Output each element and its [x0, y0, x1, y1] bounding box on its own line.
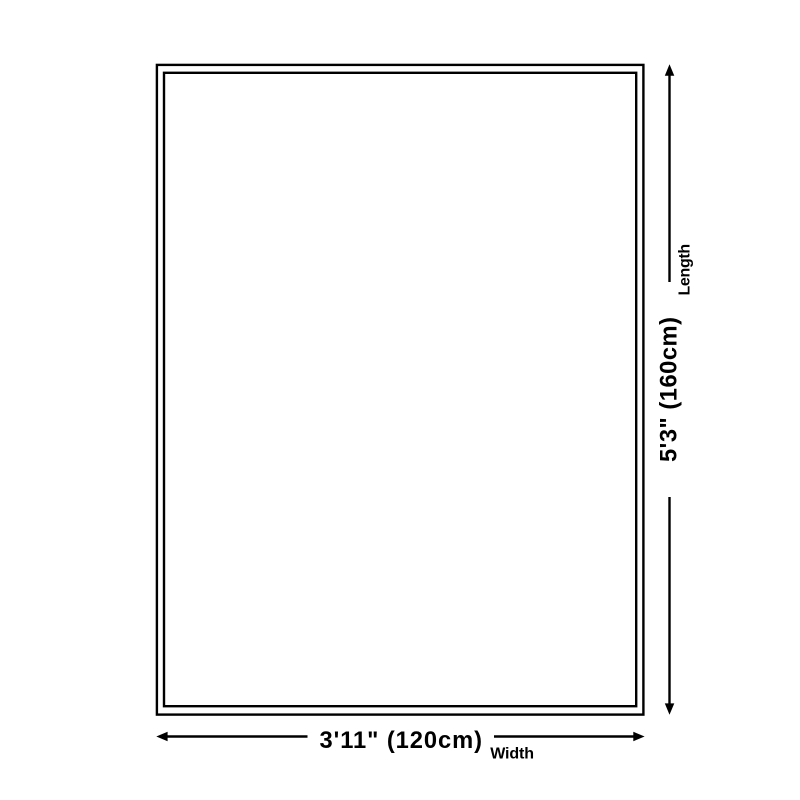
svg-text:Width: Width: [490, 746, 534, 763]
svg-text:5'3" (160cm): 5'3" (160cm): [657, 317, 683, 462]
svg-text:3'11" (120cm): 3'11" (120cm): [320, 728, 483, 754]
svg-text:Length: Length: [676, 244, 693, 296]
